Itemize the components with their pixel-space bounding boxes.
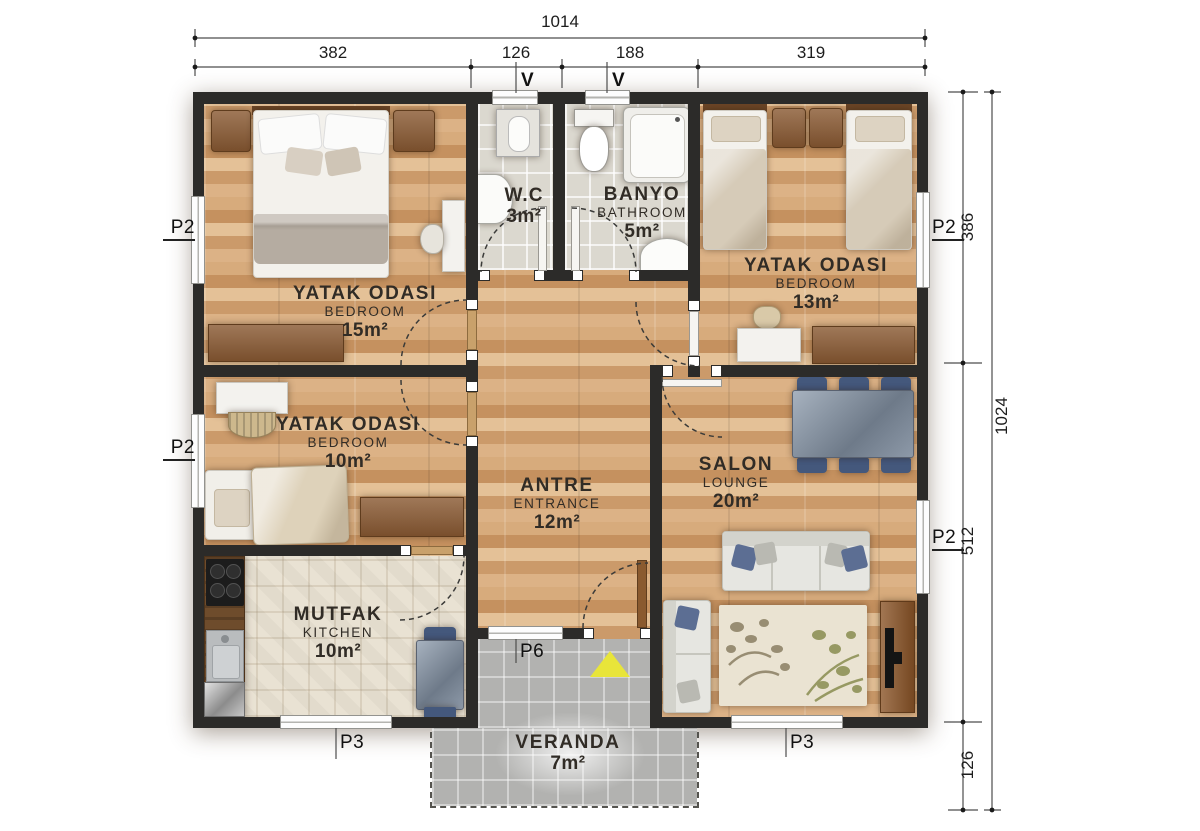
door-jamb	[662, 365, 673, 377]
nightstand	[393, 110, 435, 152]
wall	[563, 628, 583, 639]
kitchen-table	[416, 640, 464, 710]
marker-p2-left-mid: P2	[163, 437, 195, 461]
wall	[917, 92, 928, 192]
tv-unit	[880, 601, 915, 713]
wall	[917, 288, 928, 500]
door-jamb	[534, 270, 545, 281]
sofa-pillow	[841, 545, 869, 573]
door-jamb	[688, 300, 700, 311]
marker-p2-right-top: P2	[932, 217, 964, 241]
wall	[640, 270, 700, 281]
window	[585, 90, 630, 105]
fridge	[204, 682, 245, 717]
veranda-window	[488, 626, 563, 640]
duvet	[251, 464, 350, 545]
burner	[226, 564, 241, 579]
kitchen-sink	[206, 630, 244, 682]
wall	[466, 270, 480, 281]
wall	[630, 92, 928, 104]
wall	[722, 365, 928, 377]
double-bed	[253, 110, 389, 278]
pillow	[214, 489, 250, 527]
window	[731, 715, 843, 729]
pillow	[855, 116, 905, 142]
sofa-backrest	[723, 532, 869, 546]
window	[280, 715, 392, 729]
dim-top-seg-2: 126	[486, 43, 546, 63]
door-jamb	[572, 270, 583, 281]
dresser	[208, 324, 344, 362]
sofa-small	[663, 600, 711, 713]
door-jamb	[479, 270, 490, 281]
entrance-door-leaf	[637, 560, 647, 628]
window-marker-v2: V	[612, 70, 625, 92]
chair	[420, 224, 444, 254]
window-marker-v1: V	[521, 70, 534, 92]
wall	[193, 717, 280, 728]
sofa	[722, 531, 870, 591]
wall	[193, 545, 400, 556]
pillow	[711, 116, 761, 142]
door-jamb	[400, 545, 411, 556]
wall	[466, 447, 478, 728]
dim-top-seg-3: 188	[600, 43, 660, 63]
door-leaf	[467, 310, 477, 350]
shower-drain	[675, 117, 680, 122]
window	[916, 500, 930, 594]
dim-right-total: 1024	[992, 394, 1012, 438]
wall	[466, 628, 488, 639]
marker-p6: P6	[520, 641, 544, 663]
door-jamb	[640, 628, 651, 639]
tv-stand	[894, 652, 902, 664]
door-leaf	[411, 546, 453, 555]
door-jamb	[583, 628, 594, 639]
burner	[226, 583, 241, 598]
wall	[193, 508, 204, 728]
blanket	[254, 214, 388, 264]
dining-chair	[797, 458, 827, 473]
wall	[553, 92, 565, 281]
marker-p2-right-mid: P2	[932, 527, 964, 551]
wall	[464, 545, 478, 556]
door-leaf	[689, 311, 699, 356]
desk	[737, 328, 801, 362]
dining-chair	[881, 458, 911, 473]
dining-chair	[839, 458, 869, 473]
door-jamb	[688, 356, 700, 367]
door-jamb	[629, 270, 640, 281]
chair	[753, 306, 781, 330]
shower	[623, 107, 690, 183]
cushion	[324, 146, 362, 177]
door-jamb	[466, 436, 478, 447]
door-jamb	[466, 381, 478, 392]
sink-faucet	[221, 635, 229, 643]
sofa-pillow	[674, 605, 700, 631]
wall	[688, 366, 700, 377]
burner	[210, 564, 225, 579]
blanket	[704, 149, 766, 249]
wc-sink	[477, 174, 513, 224]
window	[191, 414, 205, 508]
floor-plan: 1014 382 126 188 319 386 512 126 1024 V …	[0, 0, 1200, 831]
wall	[193, 365, 478, 377]
marker-p3-left: P3	[340, 732, 364, 754]
wall	[545, 270, 572, 281]
window	[916, 192, 930, 288]
wall	[650, 717, 731, 728]
toilet-bowl	[579, 126, 609, 172]
single-bed	[846, 110, 912, 250]
cushion	[284, 147, 323, 177]
dim-top-total: 1014	[530, 12, 590, 32]
blanket	[847, 149, 911, 249]
desk	[442, 200, 465, 272]
wall	[193, 284, 204, 414]
sofa-seam	[676, 653, 710, 655]
dining-table	[792, 390, 914, 458]
door-leaf	[467, 392, 477, 436]
single-bed	[703, 110, 767, 250]
sofa-pillow	[753, 541, 777, 565]
squat-toilet	[496, 109, 540, 157]
dim-top-seg-4: 319	[781, 43, 841, 63]
rug	[719, 605, 867, 706]
cooktop	[206, 559, 244, 606]
dresser	[216, 382, 288, 414]
window	[492, 90, 538, 105]
wall	[193, 92, 492, 104]
wall	[843, 717, 928, 728]
toilet-tank	[574, 109, 614, 127]
sofa-pillow	[676, 679, 701, 704]
wall	[917, 594, 928, 728]
wall	[193, 92, 204, 196]
door-jamb	[711, 365, 722, 377]
shower-tray	[630, 114, 685, 178]
door-leaf	[538, 206, 547, 271]
nightstand	[772, 108, 806, 148]
squat-basin	[508, 116, 530, 152]
marker-p3-right: P3	[790, 732, 814, 754]
veranda-glow	[495, 712, 645, 796]
wall	[650, 365, 662, 728]
door-jamb	[453, 545, 464, 556]
dim-top-seg-1: 382	[303, 43, 363, 63]
burner	[210, 583, 225, 598]
door-jamb	[466, 350, 478, 361]
tv	[885, 628, 894, 688]
rug-pattern	[719, 605, 867, 706]
nightstand	[809, 108, 843, 148]
wall	[466, 92, 478, 300]
sofa-seam	[819, 546, 821, 590]
dim-right-seg-3: 126	[958, 745, 978, 785]
dresser	[812, 326, 915, 364]
chair	[228, 412, 276, 438]
bench	[360, 497, 464, 537]
sofa-backrest	[664, 601, 676, 712]
door-leaf	[571, 206, 580, 271]
door-jamb	[466, 299, 478, 310]
door-leaf	[662, 379, 722, 387]
sink-basin	[212, 645, 240, 679]
marker-p2-left-top: P2	[163, 217, 195, 241]
nightstand	[211, 110, 251, 152]
